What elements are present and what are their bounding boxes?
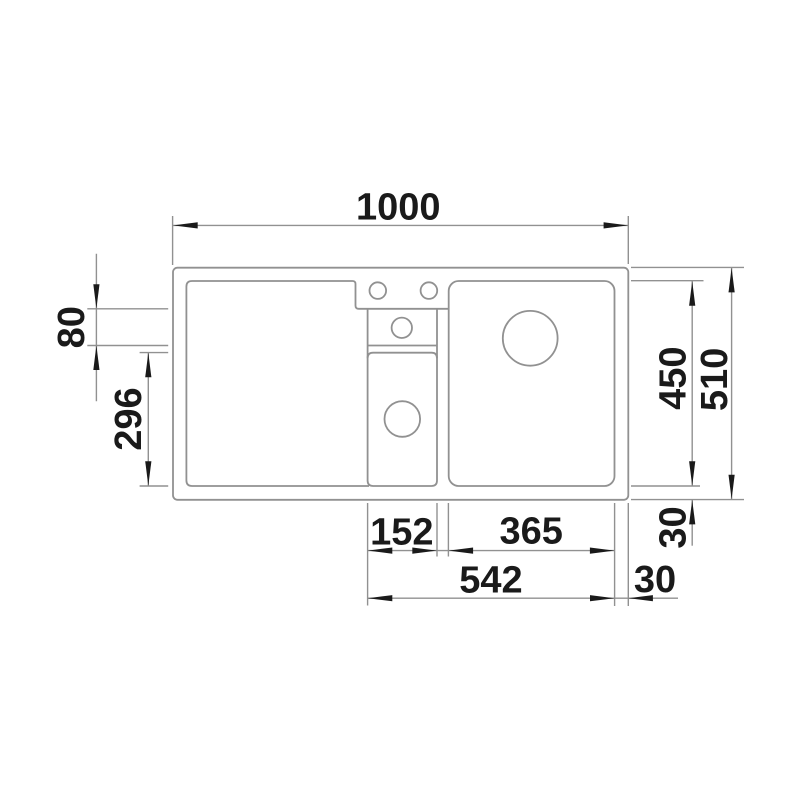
svg-text:1000: 1000 — [356, 186, 441, 228]
svg-text:542: 542 — [459, 559, 522, 601]
svg-text:30: 30 — [653, 506, 695, 548]
svg-text:152: 152 — [370, 511, 433, 553]
svg-text:450: 450 — [652, 346, 694, 409]
svg-text:365: 365 — [499, 511, 562, 553]
svg-text:30: 30 — [634, 559, 676, 601]
svg-text:510: 510 — [694, 348, 736, 411]
svg-text:296: 296 — [108, 387, 150, 450]
svg-text:80: 80 — [51, 306, 93, 348]
